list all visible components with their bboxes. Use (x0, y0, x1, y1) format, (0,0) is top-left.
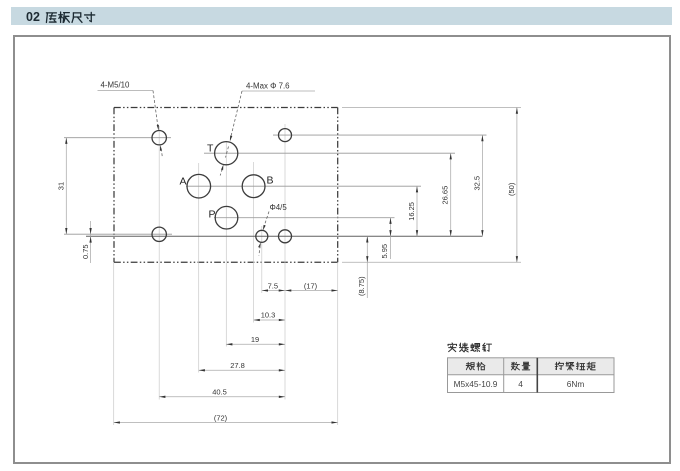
svg-text:16.25: 16.25 (407, 202, 416, 221)
svg-text:40.5: 40.5 (212, 387, 227, 396)
svg-text:(72): (72) (214, 413, 228, 422)
svg-text:0.75: 0.75 (81, 244, 90, 259)
svg-text:T: T (207, 143, 214, 155)
svg-text:Φ4/5: Φ4/5 (270, 203, 288, 212)
svg-text:26.65: 26.65 (441, 186, 450, 205)
svg-text:6Nm: 6Nm (567, 379, 585, 389)
svg-text:A: A (180, 176, 187, 188)
svg-text:M5x45-10.9: M5x45-10.9 (454, 379, 498, 389)
svg-text:(50): (50) (507, 182, 516, 196)
svg-text:5.95: 5.95 (380, 244, 389, 259)
svg-text:4-Max Φ 7.6: 4-Max Φ 7.6 (246, 81, 290, 90)
svg-text:(17): (17) (304, 282, 318, 291)
svg-text:32.5: 32.5 (472, 176, 481, 191)
svg-text:19: 19 (251, 335, 259, 344)
svg-text:27.8: 27.8 (230, 361, 245, 370)
svg-text:B: B (267, 175, 274, 187)
svg-text:(8.75): (8.75) (357, 276, 366, 296)
svg-text:10.3: 10.3 (261, 311, 276, 320)
svg-text:7.5: 7.5 (268, 282, 278, 291)
svg-text:4: 4 (518, 379, 523, 389)
svg-text:4-M5/10: 4-M5/10 (101, 80, 131, 89)
svg-text:02: 02 (26, 10, 40, 24)
svg-text:31: 31 (57, 182, 66, 190)
svg-text:P: P (209, 209, 216, 221)
